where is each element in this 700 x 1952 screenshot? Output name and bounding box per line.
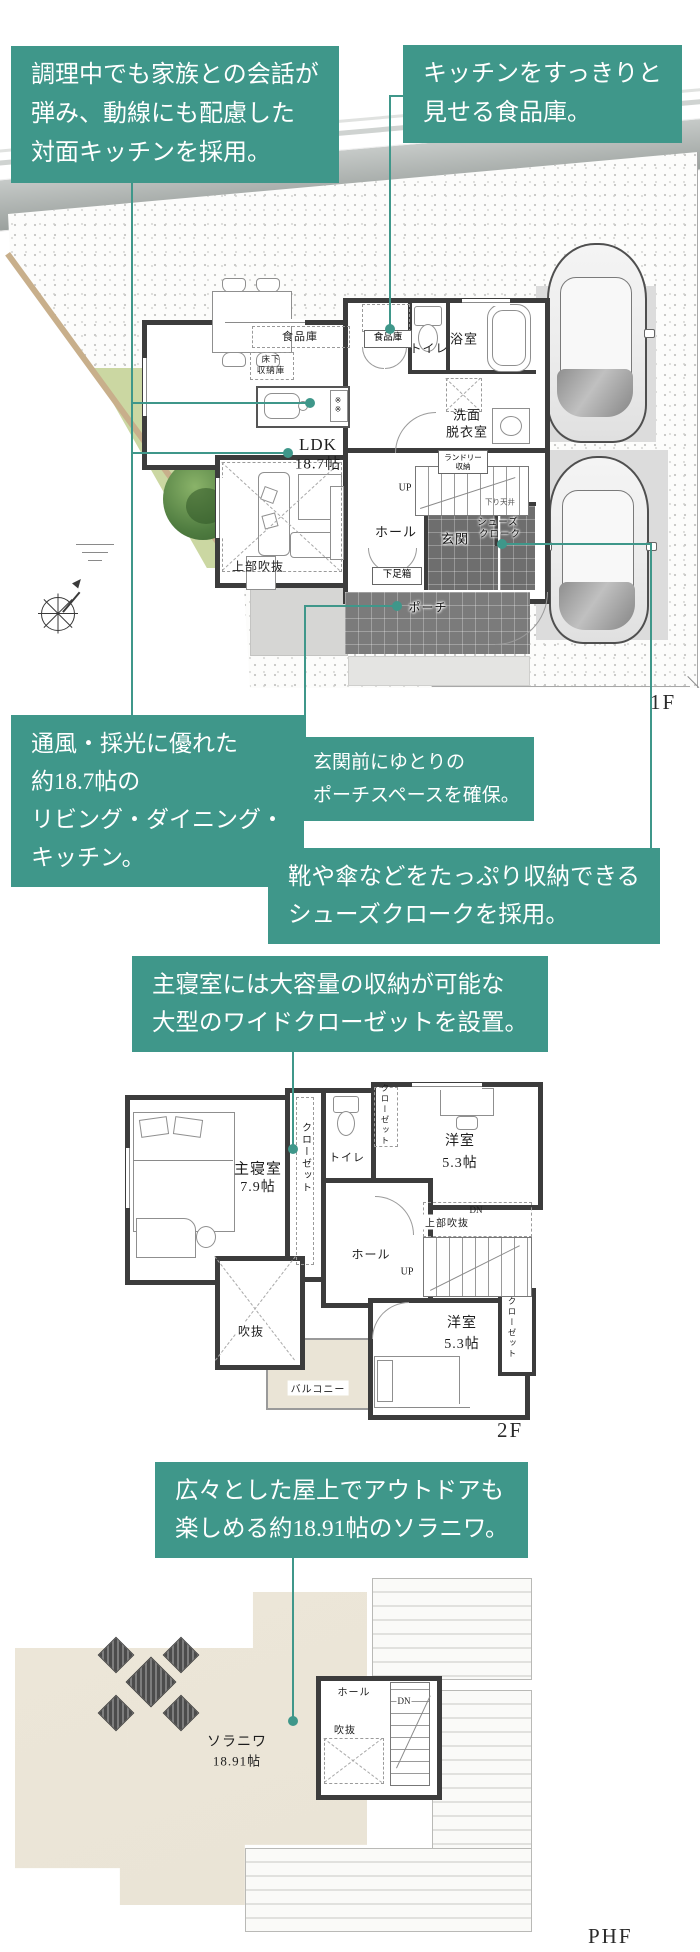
connector-line — [389, 95, 391, 326]
label-balcony: バルコニー — [288, 1381, 349, 1396]
label-ldk-size: 18.7帖 — [295, 453, 341, 474]
kitchen-sink — [264, 393, 300, 419]
label-shoe-box: 下足箱 — [372, 567, 422, 585]
ground-cover-icon — [82, 552, 108, 553]
label-void-above-2f: 上部吹抜 — [423, 1215, 471, 1230]
connector-dot — [385, 324, 395, 334]
label-up-1f: UP — [399, 483, 412, 494]
label-soraniwa-size: 18.91帖 — [213, 1751, 261, 1770]
connector-line — [292, 1052, 294, 1146]
floor-label-phf: PHF — [588, 1924, 633, 1949]
connector-line — [133, 452, 285, 454]
annotation-soraniwa: 広々とした屋上でアウトドアも 楽しめる約18.91帖のソラニワ。 — [155, 1462, 528, 1558]
annotation-pantry: キッチンをすっきりと 見せる食品庫。 — [403, 45, 682, 143]
label-bedroom-se-size: 5.3帖 — [444, 1333, 480, 1353]
label-text: 下足箱 — [383, 570, 412, 582]
annotation-line: 楽しめる約18.91帖のソラニワ。 — [175, 1510, 508, 1548]
label-toilet-2f: トイレ — [329, 1149, 365, 1165]
annotation-line: 見せる食品庫。 — [423, 94, 662, 133]
label-void-2f: 吹抜 — [236, 1323, 266, 1340]
label-closet-east: クローゼット — [506, 1297, 518, 1360]
roof-hatch — [245, 1848, 532, 1932]
connector-dot — [305, 398, 315, 408]
dining-chair — [222, 352, 246, 367]
site-right-line — [697, 152, 698, 688]
label-up-2f: UP — [401, 1267, 414, 1278]
window — [216, 478, 223, 538]
pillow — [377, 1360, 393, 1402]
label-hall-1f: ホール — [375, 522, 417, 541]
label-laundry-storage: ランドリー 収納 — [438, 450, 488, 474]
pillow — [173, 1116, 203, 1138]
connector-dot — [288, 1716, 298, 1726]
label-shoes-cloak-2: クローク — [479, 526, 521, 540]
label-closet-ne: クローゼット — [379, 1084, 391, 1147]
connector-line — [131, 183, 133, 715]
annotation-kitchen-counter: 調理中でも家族との会話が 弾み、動線にも配慮した 対面キッチンを採用。 — [11, 46, 339, 183]
desk — [136, 1218, 196, 1258]
connector-line — [650, 543, 652, 848]
window — [462, 299, 510, 306]
annotation-line: 玄関前にゆとりの — [313, 746, 520, 779]
label-text: 食品庫 — [374, 333, 403, 345]
label-closet-west: クローゼット — [298, 1122, 313, 1194]
window — [225, 319, 305, 326]
bathtub-inner — [492, 310, 526, 366]
label-bath: 浴室 — [450, 329, 478, 348]
label-bedroom-se: 洋室 — [447, 1312, 477, 1332]
ground-cover-icon — [76, 544, 114, 545]
roof-hatch — [372, 1578, 532, 1680]
car-1 — [547, 243, 647, 443]
label-washroom-2: 脱衣室 — [446, 422, 488, 441]
annotation-line: 主寝室には大容量の収納が可能な — [152, 966, 528, 1004]
annotation-line: 弾み、動線にも配慮した — [31, 95, 319, 134]
chair — [456, 1116, 478, 1130]
connector-line — [304, 605, 306, 737]
chair — [196, 1226, 216, 1248]
annotation-line: リビング・ダイニング・ — [31, 801, 284, 839]
label-lowered-ceiling: 下り天井 — [485, 497, 515, 508]
blanket-line — [133, 1160, 233, 1161]
wall — [424, 504, 428, 590]
annotation-line: キッチン。 — [31, 839, 284, 877]
annotation-line: ポーチスペースを確保。 — [313, 779, 520, 812]
annotation-line: 調理中でも家族との会話が — [31, 56, 319, 95]
porch-step — [348, 656, 530, 686]
connector-dot — [288, 1144, 298, 1154]
label-toilet-1f: トイレ — [409, 340, 448, 357]
pillow — [139, 1116, 169, 1138]
floor-label-1f: 1F — [650, 690, 676, 715]
annotation-line: 広々とした屋上でアウトドアも — [175, 1472, 508, 1510]
annotation-shoes-cloak: 靴や傘などをたっぷり収納できる シューズクロークを採用。 — [268, 848, 660, 944]
label-genkan: 玄関 — [441, 529, 469, 548]
label-void-above-1f: 上部吹抜 — [232, 558, 284, 575]
annotation-master-bedroom: 主寝室には大容量の収納が可能な 大型のワイドクローゼットを設置。 — [132, 956, 548, 1052]
label-hall-phf: ホール — [338, 1684, 371, 1699]
connector-line — [306, 605, 394, 607]
label-text: 収納 — [456, 462, 471, 471]
floor-label-2f: 2F — [497, 1418, 523, 1443]
annotation-line: 靴や傘などをたっぷり収納できる — [288, 858, 640, 896]
label-bedroom-ne: 洋室 — [445, 1130, 475, 1150]
label-master-size: 7.9帖 — [240, 1176, 276, 1196]
label-hall-2f: ホール — [351, 1246, 390, 1263]
window — [143, 358, 150, 416]
connector-dot — [497, 539, 507, 549]
label-bedroom-ne-size: 5.3帖 — [442, 1152, 478, 1172]
annotation-line: 大型のワイドクローゼットを設置。 — [152, 1004, 528, 1042]
car-2 — [549, 456, 649, 644]
annotation-line: シューズクロークを採用。 — [288, 896, 640, 934]
toilet-tank — [414, 306, 442, 326]
connector-line — [292, 1556, 294, 1718]
washbasin-bowl — [500, 416, 522, 436]
floor-plan-page: ※※ 食品庫 床下 収納庫 食品庫 トイレ 浴室 洗面 脱衣室 ランドリー 収納… — [0, 0, 700, 1952]
label-void-phf: 吹抜 — [332, 1722, 358, 1737]
annotation-ldk: 通風・採光に優れた 約18.7帖の リビング・ダイニング・ キッチン。 — [11, 715, 304, 887]
toilet-bowl — [337, 1111, 355, 1136]
annotation-line: 約18.7帖の — [31, 763, 284, 801]
connector-dot — [392, 601, 402, 611]
label-dn-2f: DN — [470, 1205, 483, 1215]
annotation-line: キッチンをすっきりと — [423, 55, 662, 94]
ground-cover-icon — [88, 560, 102, 561]
connector-line — [133, 402, 307, 404]
annotation-line: 通風・採光に優れた — [31, 725, 284, 763]
connector-dot — [283, 448, 293, 458]
window — [398, 1404, 470, 1411]
desk — [440, 1088, 494, 1116]
stove-burner-icon: ※※ — [334, 396, 343, 414]
label-pantry: 食品庫 — [282, 328, 318, 344]
window — [126, 1148, 133, 1208]
label-dn-phf: DN — [397, 1696, 412, 1706]
label-soraniwa: ソラニワ — [207, 1731, 267, 1751]
label-porch: ポーチ — [408, 599, 447, 616]
roof-hatch — [432, 1690, 532, 1850]
label-text: ランドリー — [444, 453, 482, 462]
window — [412, 1083, 482, 1090]
label-underfloor-2: 収納庫 — [257, 364, 286, 376]
connector-line — [502, 543, 652, 545]
annotation-line: 対面キッチンを採用。 — [31, 134, 319, 173]
annotation-porch: 玄関前にゆとりの ポーチスペースを確保。 — [299, 737, 534, 821]
compass-icon — [36, 592, 80, 636]
